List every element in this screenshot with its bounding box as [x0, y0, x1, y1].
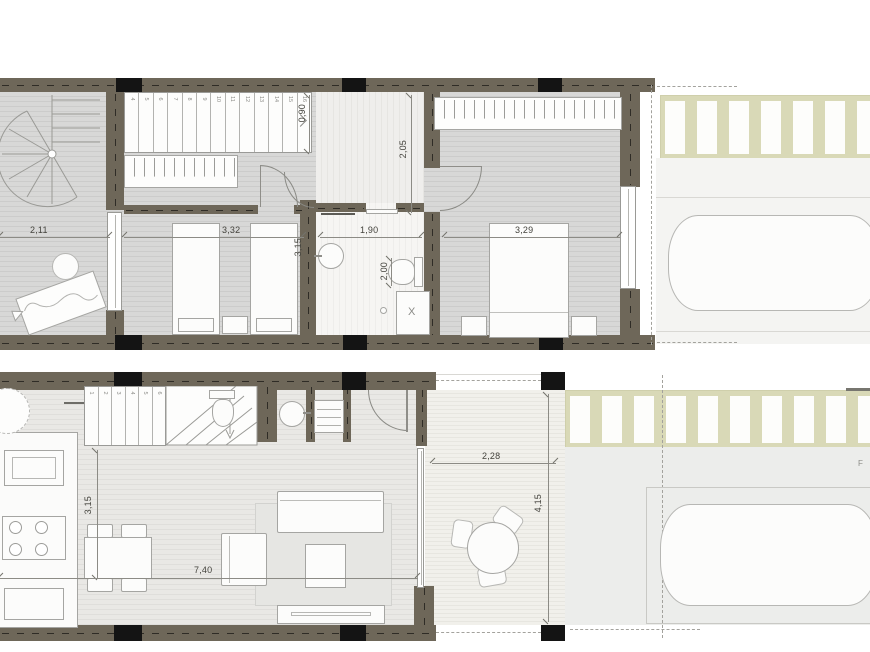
shelf-line — [317, 417, 341, 418]
bedroom1-nightstand-right — [571, 316, 597, 336]
stair-tread: 14 — [269, 93, 283, 152]
stair-tread: 7 — [168, 93, 182, 152]
stair-tread-number: 11 — [229, 96, 235, 102]
dim-landing-width: 0,90 — [297, 104, 307, 122]
wc-toilet-bowl — [212, 399, 234, 427]
stair-tread: 11 — [226, 93, 240, 152]
dining-chair — [121, 578, 147, 592]
living-glass-wall — [417, 448, 424, 588]
stair-tread: 6 — [154, 93, 168, 152]
dim-line — [309, 95, 310, 152]
dim-terrace-width: 2,28 — [482, 451, 500, 461]
lounge-divider-wall-top — [106, 92, 124, 210]
stair-tread: 4 — [125, 93, 139, 152]
car-ground — [660, 504, 870, 606]
stair-tread: 5 — [139, 93, 153, 152]
stair-tread-number: 1 — [88, 390, 94, 396]
terrace-bottom-edge — [436, 632, 541, 633]
dim-line — [391, 258, 392, 286]
stair-tread: 10 — [211, 93, 225, 152]
column — [538, 78, 562, 92]
stair-tread: 8 — [183, 93, 197, 152]
chaise-longue — [6, 268, 116, 338]
lounge-glass-door — [107, 212, 122, 311]
shelf-line — [317, 409, 341, 410]
entry-side-wall — [416, 388, 427, 446]
site-edge-label: F — [858, 459, 863, 468]
stair-tread-number: 5 — [143, 96, 149, 102]
upper-right-wall-top — [620, 92, 640, 187]
bedroom1-window — [620, 186, 636, 289]
stair-tread-number: 4 — [129, 96, 135, 102]
shelf-right-wall — [343, 385, 351, 442]
column — [115, 335, 142, 350]
dim-line — [432, 463, 556, 464]
stair-tread-number: 10 — [215, 96, 221, 102]
living-corner-wall — [414, 586, 434, 627]
dim-line — [0, 578, 418, 579]
pergola-slats — [570, 396, 870, 443]
dim-living-depth: 3,15 — [83, 496, 93, 514]
terrace-top-edge — [436, 380, 541, 381]
entry-door-leaf — [406, 390, 408, 432]
shower-head — [380, 307, 387, 314]
stair-tread-number: 9 — [201, 96, 207, 102]
stair-tread: 13 — [255, 93, 269, 152]
stair-tread-number: 6 — [157, 96, 163, 102]
dim-terrace-depth: 4,15 — [533, 494, 543, 512]
pergola-roof-upper — [660, 95, 870, 160]
wc-right-wall — [257, 385, 277, 442]
washbasin-tap — [314, 255, 322, 257]
stair-tread-number: 6 — [156, 390, 162, 396]
shower-tray: X — [396, 291, 430, 335]
dining-chair — [87, 578, 113, 592]
boundary-ticks — [570, 629, 700, 630]
dim-living-width: 7,40 — [194, 565, 212, 575]
stair-tread: 3 — [112, 387, 126, 445]
dining-chair — [87, 524, 113, 538]
dining-table — [84, 537, 152, 579]
bedroom2-top-wall — [124, 205, 258, 214]
stair-tread-number: 8 — [186, 96, 192, 102]
spiral-stair — [0, 92, 102, 214]
stair-tread-number: 14 — [273, 96, 279, 102]
sofa-back-line — [280, 500, 381, 501]
column — [116, 78, 142, 92]
dim-bedroom1-width: 3,29 — [515, 225, 533, 235]
cooktop-burner — [9, 543, 22, 556]
stair-tread-number: 7 — [172, 96, 178, 102]
bedroom1-bed-foldline — [490, 312, 568, 313]
floorplan-canvas: 4 5 6 7 8 9 10 11 12 13 14 15 16 — [0, 0, 870, 652]
stair-handrail — [64, 402, 84, 404]
stair-tread: 6 — [153, 387, 166, 445]
dim-line — [124, 237, 304, 238]
kitchen-appliance — [4, 588, 64, 620]
pergola-roof-ground — [565, 390, 870, 449]
ground-stair: 1 2 3 4 5 6 — [84, 386, 166, 446]
pergola-slats — [665, 101, 870, 154]
shelf-line — [317, 425, 341, 426]
pergola-corner-tick — [846, 388, 870, 391]
wc-toilet-tank — [209, 390, 235, 399]
toilet-tank — [414, 257, 423, 287]
dim-line — [320, 237, 422, 238]
bedroom2-door-leaf — [260, 165, 261, 207]
dim-line — [548, 394, 549, 622]
stair-tread: 4 — [126, 387, 140, 445]
terrace-top-line — [436, 374, 541, 375]
column — [114, 625, 142, 641]
column — [541, 625, 565, 641]
bedroom2-bed-left-pillow — [178, 318, 214, 332]
cooktop-burner — [35, 521, 48, 534]
wardrobe-closet — [124, 155, 238, 188]
sofa — [277, 491, 384, 533]
coffee-table — [305, 544, 346, 588]
dim-line — [97, 450, 98, 578]
plot-boundary-line — [651, 85, 652, 345]
column — [342, 372, 366, 390]
cooktop-burner — [9, 521, 22, 534]
column — [343, 335, 367, 350]
column — [342, 78, 366, 92]
bedroom1-nightstand-left — [461, 316, 487, 336]
ground-washbasin — [279, 401, 305, 427]
stair-tread-number: 5 — [142, 390, 148, 396]
driveway-line — [656, 331, 870, 332]
dim-hall-length: 2,05 — [398, 140, 408, 158]
bath-top-wall-left — [316, 203, 366, 212]
bedroom2-nightstand — [222, 316, 248, 334]
dim-bath-depth: 2,00 — [379, 262, 389, 280]
hall-shelves — [314, 400, 344, 433]
upper-stair: 4 5 6 7 8 9 10 11 12 13 14 15 16 — [124, 92, 312, 153]
bath-sliding-door-leaf — [366, 209, 398, 214]
stair-tread: 1 — [85, 387, 99, 445]
terrace-deck — [425, 390, 565, 625]
bedroom1-wardrobe — [434, 97, 622, 130]
toilet-bowl — [388, 259, 415, 285]
dim-bedroom2-width: 3,32 — [222, 225, 240, 235]
bath-top-wall-right — [396, 203, 424, 212]
bedroom1-bed — [489, 223, 569, 338]
stair-tread: 5 — [139, 387, 153, 445]
stair-tread-number: 15 — [287, 96, 293, 102]
stair-tread-number: 4 — [129, 390, 135, 396]
boundary-ticks — [657, 86, 737, 87]
dim-bedroom2-depth: 3,15 — [293, 238, 303, 256]
column — [340, 625, 366, 641]
bedroom2-bath-wall — [300, 200, 316, 337]
dim-line — [411, 95, 412, 213]
upper-right-wall-bottom — [620, 289, 640, 337]
kitchen-sink-basin — [12, 457, 56, 479]
dining-chair — [121, 524, 147, 538]
column — [541, 372, 565, 390]
dim-bath-width: 1,90 — [360, 225, 378, 235]
boundary-ticks — [657, 342, 737, 343]
driveway-line — [656, 197, 870, 198]
stair-tread: 12 — [240, 93, 254, 152]
stair-tread: 9 — [197, 93, 211, 152]
cooktop-burner — [35, 543, 48, 556]
stair-tread-number: 2 — [102, 390, 108, 396]
terrace-table — [467, 522, 519, 574]
stair-tread-number: 13 — [258, 96, 264, 102]
shower-drain-mark: X — [408, 306, 415, 318]
stair-tread-number: 3 — [115, 390, 121, 396]
dim-line — [444, 237, 620, 238]
ground-washbasin-tap — [303, 412, 311, 414]
stair-tread: 2 — [99, 387, 113, 445]
bedroom2-bed-right-pillow — [256, 318, 292, 332]
towel-rail — [321, 213, 355, 215]
dim-line — [0, 237, 110, 238]
bedroom1-door-leaf — [440, 166, 482, 167]
tv-stand-slot — [291, 612, 371, 616]
dim-lounge-width: 2,11 — [30, 225, 48, 235]
stair-tread-number: 12 — [244, 96, 250, 102]
armchair-line — [229, 536, 230, 583]
car-upper — [668, 215, 870, 311]
